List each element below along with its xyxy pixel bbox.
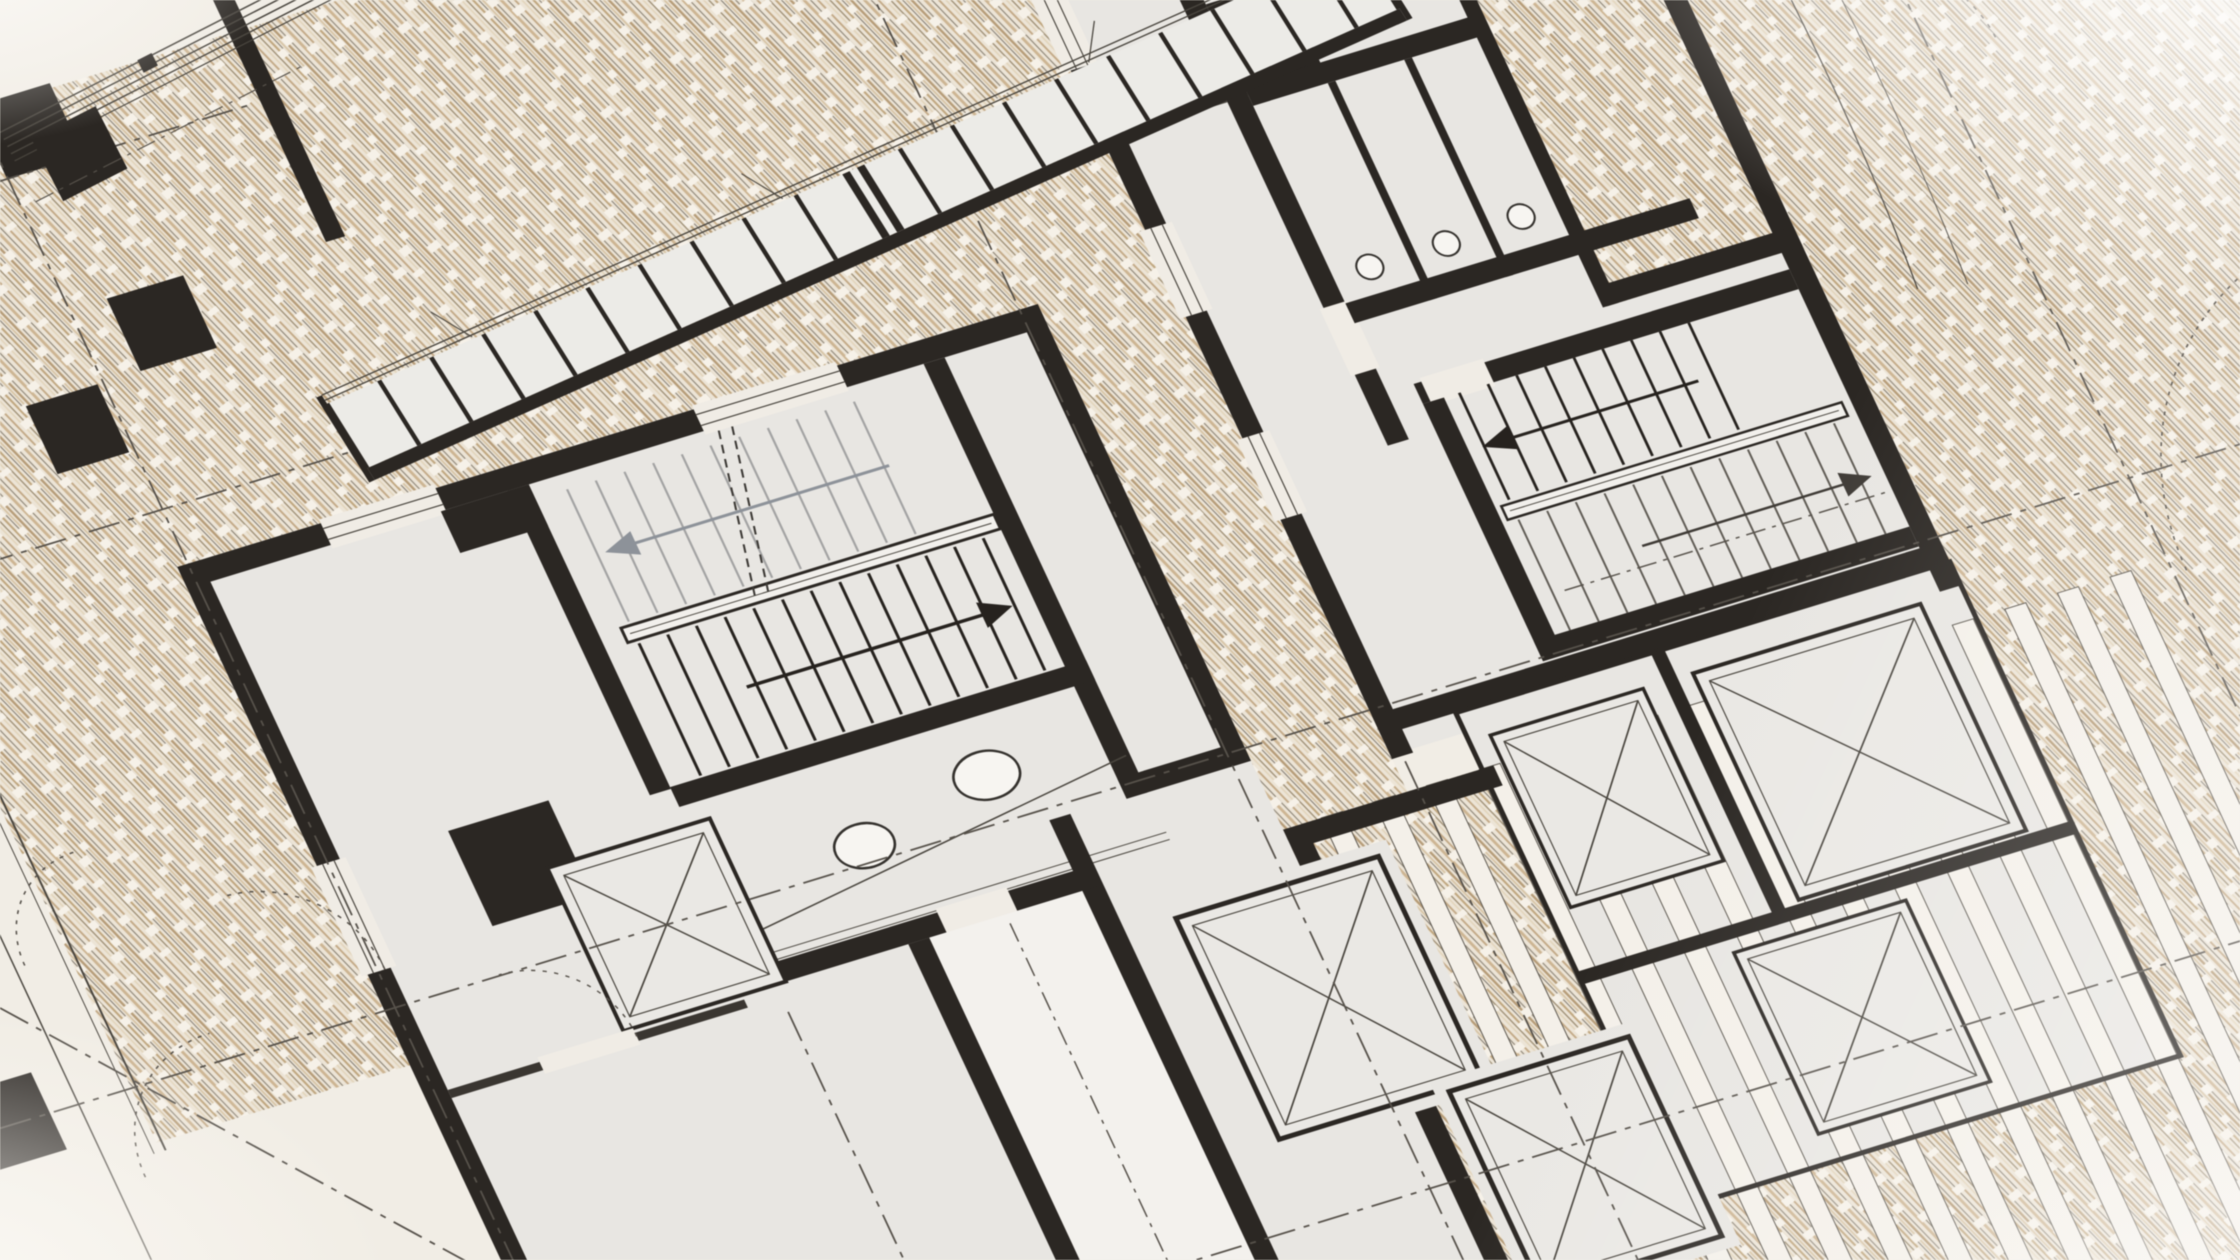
floor-plan-photo (0, 0, 2240, 1260)
plan-tilted-group (0, 0, 2240, 1260)
floor-plan-drawing (0, 0, 2240, 1260)
